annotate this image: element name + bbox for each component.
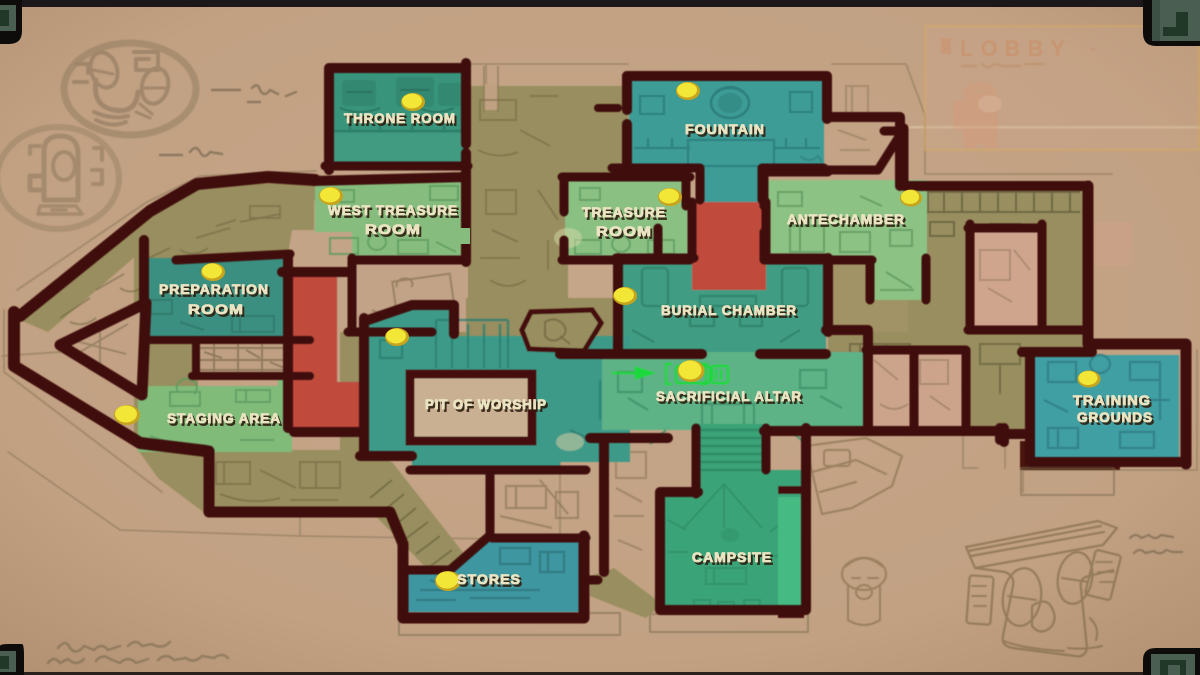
- svg-text:THRONE ROOM: THRONE ROOM: [344, 110, 456, 126]
- svg-text:TREASURE: TREASURE: [582, 204, 666, 220]
- svg-text:FOUNTAIN: FOUNTAIN: [685, 121, 765, 137]
- svg-text:WEST TREASURE: WEST TREASURE: [328, 202, 458, 218]
- svg-text:ROOM: ROOM: [365, 221, 421, 237]
- svg-text:STAGING AREA: STAGING AREA: [167, 410, 281, 426]
- svg-text:-: -: [1090, 38, 1096, 58]
- svg-text:BURIAL CHAMBER: BURIAL CHAMBER: [661, 302, 797, 318]
- svg-text:ANTECHAMBER: ANTECHAMBER: [787, 211, 905, 227]
- svg-text:ROOM: ROOM: [188, 301, 244, 317]
- svg-text:TRAINING: TRAINING: [1073, 392, 1151, 408]
- svg-text:GROUNDS: GROUNDS: [1077, 409, 1153, 425]
- svg-text:PREPARATION: PREPARATION: [159, 281, 269, 297]
- svg-text:PIT OF WORSHIP: PIT OF WORSHIP: [425, 396, 547, 412]
- svg-text:LOBBY: LOBBY: [960, 36, 1072, 61]
- svg-text:SACRIFICIAL ALTAR: SACRIFICIAL ALTAR: [656, 388, 802, 404]
- svg-text:ROOM: ROOM: [596, 223, 652, 239]
- svg-text:STORES: STORES: [457, 571, 521, 587]
- svg-text:CAMPSITE: CAMPSITE: [692, 549, 772, 565]
